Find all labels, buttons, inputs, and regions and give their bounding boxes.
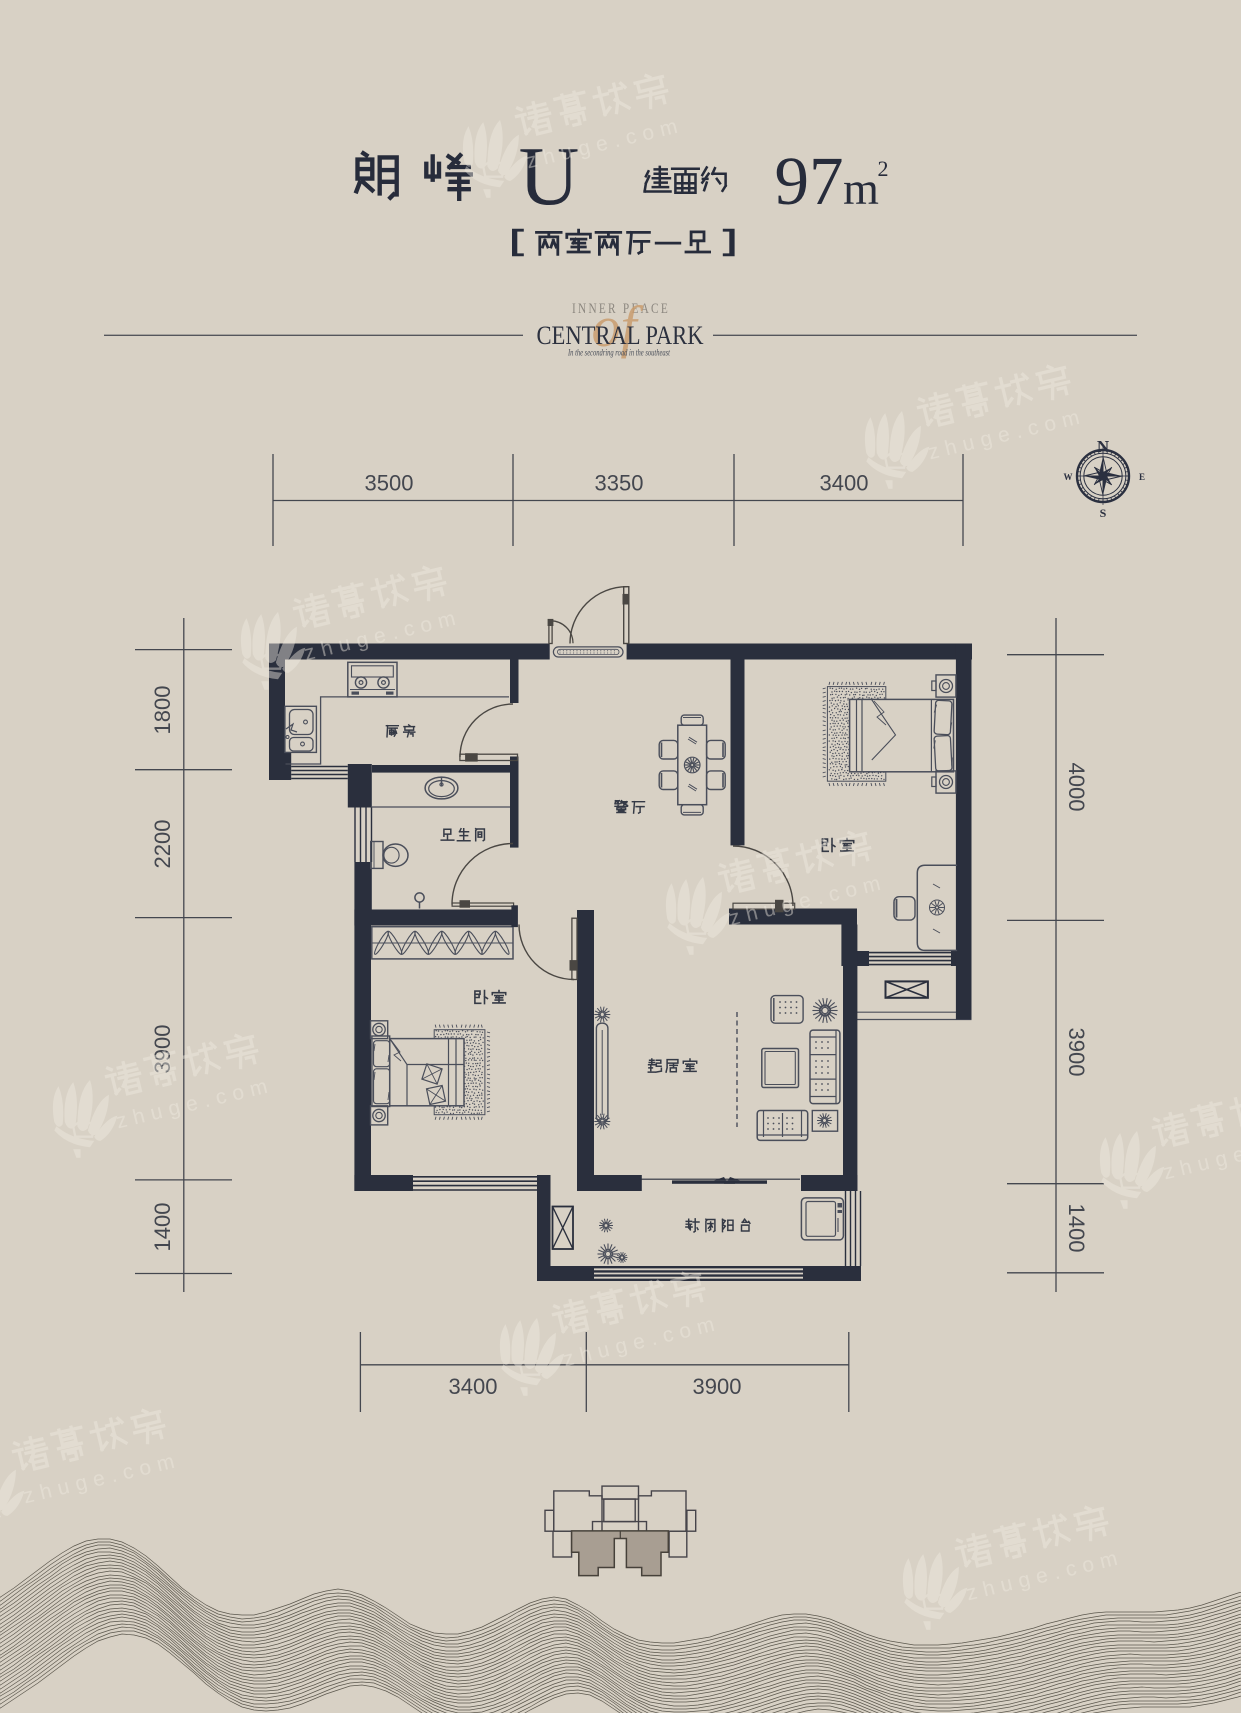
svg-text:3900: 3900	[1064, 1028, 1089, 1077]
svg-text:W: W	[1064, 472, 1073, 482]
svg-text:N: N	[1097, 437, 1110, 456]
svg-text:97: 97	[775, 143, 844, 219]
svg-text:1400: 1400	[1064, 1204, 1089, 1253]
svg-text:E: E	[1139, 472, 1145, 482]
svg-text:3400: 3400	[820, 471, 869, 496]
svg-text:3900: 3900	[693, 1374, 742, 1399]
svg-text:2200: 2200	[150, 820, 175, 869]
svg-text:2: 2	[878, 156, 889, 181]
svg-text:1400: 1400	[150, 1203, 175, 1252]
svg-text:1800: 1800	[150, 686, 175, 735]
svg-text:3350: 3350	[595, 471, 644, 496]
svg-text:m: m	[843, 163, 879, 214]
svg-text:CENTRAL PARK: CENTRAL PARK	[537, 321, 704, 350]
svg-text:4000: 4000	[1064, 763, 1089, 812]
svg-text:In the secondring road in the: In the secondring road in the southeast	[567, 348, 670, 358]
svg-text:3400: 3400	[449, 1374, 498, 1399]
svg-text:S: S	[1100, 506, 1107, 520]
svg-text:3500: 3500	[365, 471, 414, 496]
